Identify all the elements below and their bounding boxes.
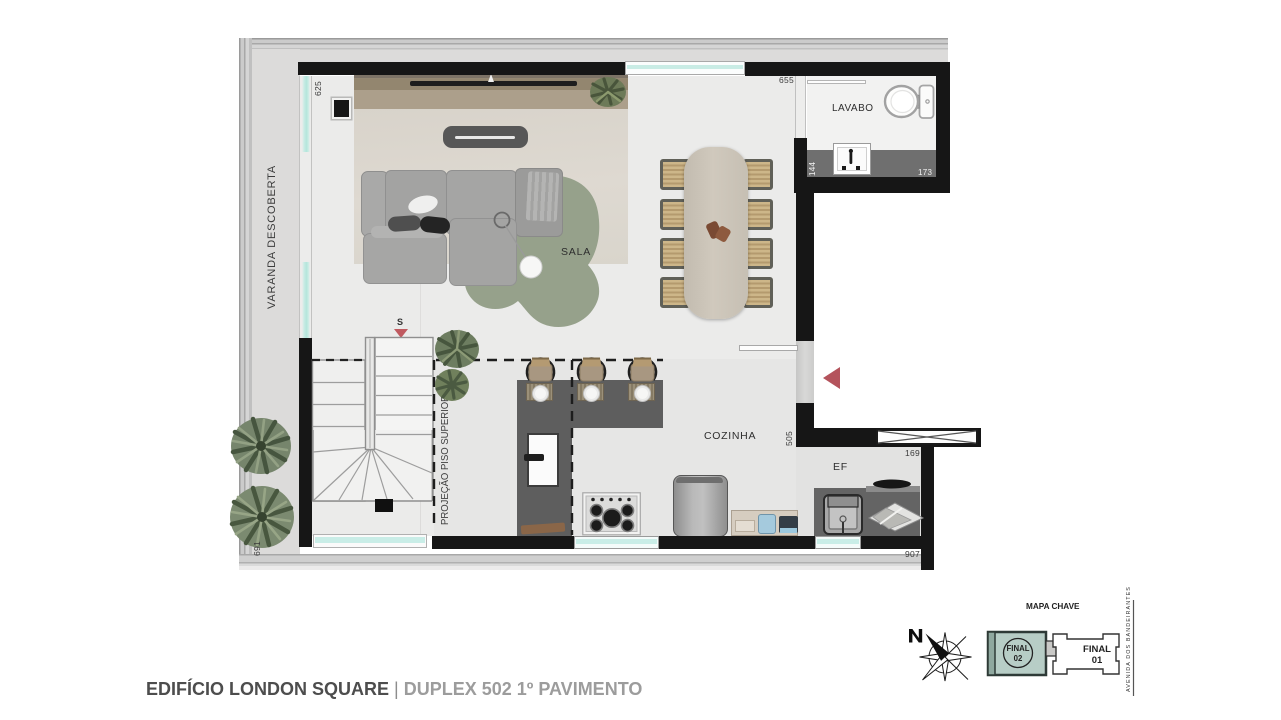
svg-text:FINAL: FINAL	[1007, 644, 1030, 653]
svg-text:FINAL: FINAL	[1083, 644, 1111, 655]
svg-text:MAPA CHAVE: MAPA CHAVE	[1026, 602, 1080, 611]
svg-text:02: 02	[1014, 654, 1023, 663]
svg-text:AVENIDA DOS BANDEIRANTES: AVENIDA DOS BANDEIRANTES	[1126, 586, 1132, 692]
svg-text:01: 01	[1092, 655, 1103, 666]
